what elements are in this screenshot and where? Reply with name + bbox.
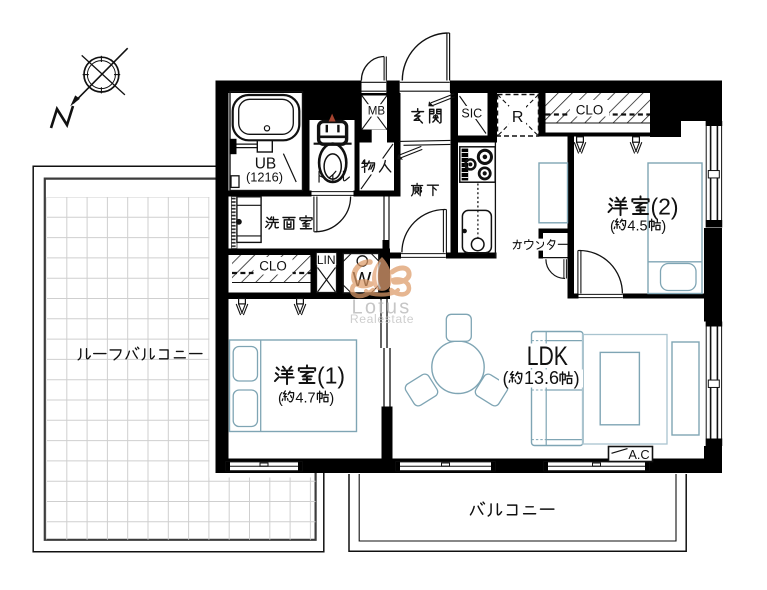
svg-text:LDK: LDK (527, 342, 568, 372)
svg-text:(2): (2) (650, 194, 678, 220)
svg-text:Realestate: Realestate (350, 312, 414, 326)
svg-text:4.5: 4.5 (627, 219, 647, 235)
svg-text:SIC: SIC (461, 107, 482, 121)
svg-text:(1216): (1216) (246, 169, 283, 184)
svg-text:): ) (329, 391, 334, 407)
svg-text:A.C: A.C (628, 447, 649, 462)
svg-text:MB: MB (368, 104, 386, 117)
svg-text:CLO: CLO (259, 258, 287, 273)
svg-text:): ) (574, 369, 580, 389)
svg-text:4.7: 4.7 (295, 391, 315, 407)
svg-text:): ) (661, 219, 666, 235)
svg-text:R: R (512, 109, 524, 126)
svg-text:CLO: CLO (576, 103, 604, 118)
svg-text:LIN: LIN (317, 253, 336, 267)
svg-text:(1): (1) (317, 363, 345, 389)
svg-text:(: ( (503, 369, 509, 389)
svg-text:13.6: 13.6 (524, 368, 559, 388)
